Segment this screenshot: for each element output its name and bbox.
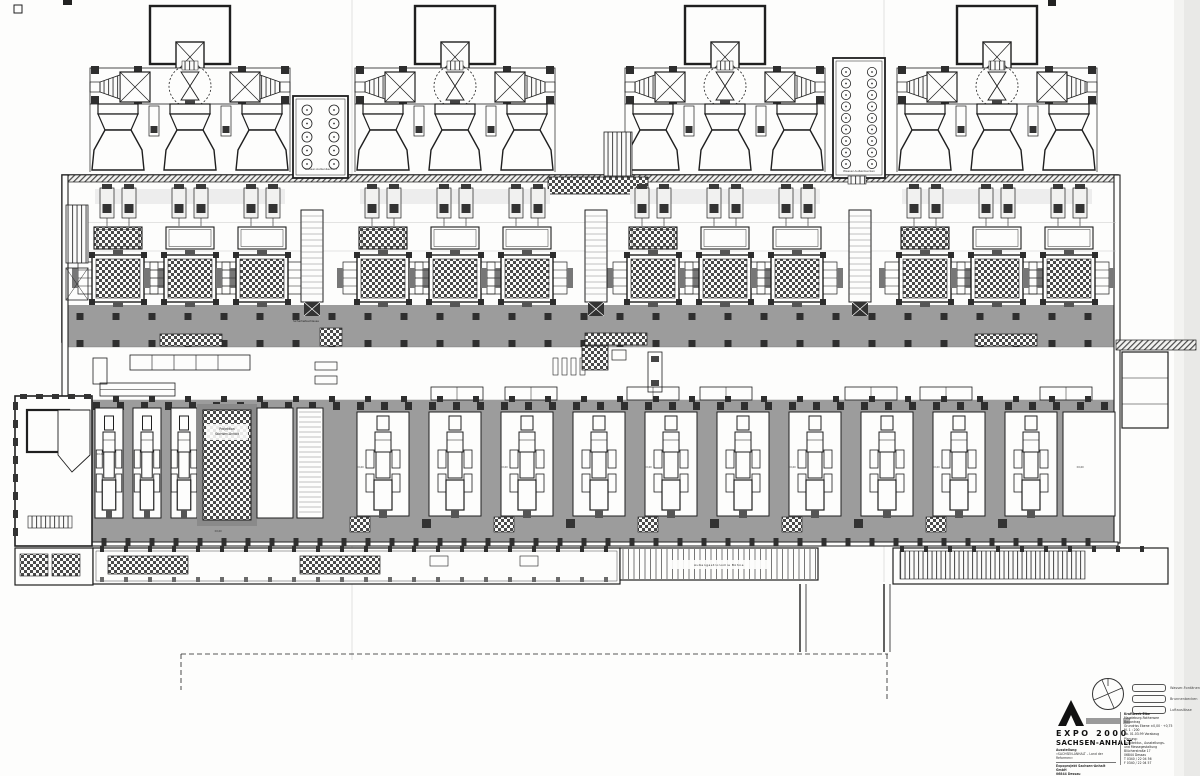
turbine-base <box>374 480 392 510</box>
plan-shape <box>624 299 630 305</box>
hopper-body <box>1043 130 1095 170</box>
plan-shape <box>781 184 791 189</box>
plan-shape <box>337 268 343 288</box>
plan-shape <box>1053 184 1063 189</box>
turbine-body <box>376 452 390 478</box>
column-post <box>1029 402 1036 410</box>
column-post <box>630 538 635 546</box>
plan-shape <box>113 302 123 307</box>
column-post <box>689 340 696 347</box>
ladder-shaft <box>297 408 323 518</box>
divider <box>1056 762 1116 763</box>
arcade-post <box>996 546 1000 552</box>
column-post <box>13 438 18 446</box>
column-post <box>333 402 340 410</box>
plan-shape <box>246 184 256 189</box>
column-post <box>293 340 300 347</box>
plan-shape <box>845 106 847 108</box>
pump-unit <box>1073 188 1087 218</box>
arcade-post <box>268 577 272 582</box>
plan-shape <box>333 163 335 165</box>
column-post <box>1085 313 1092 320</box>
platform-column <box>281 66 289 74</box>
plan-shape <box>175 204 184 213</box>
plan-shape <box>717 61 733 70</box>
column-post <box>846 538 851 546</box>
plan-shape <box>792 250 802 255</box>
column-post <box>725 396 731 402</box>
pump-unit <box>1001 188 1015 218</box>
scan-edge-light <box>1174 0 1184 776</box>
turbine-base <box>1022 480 1040 510</box>
plan-shape <box>450 302 460 307</box>
plan-shape <box>751 268 757 288</box>
column-post <box>941 340 948 347</box>
arcade-post <box>124 577 128 582</box>
column-post <box>741 402 748 410</box>
arcade-post <box>364 577 368 582</box>
plan-shape <box>478 299 484 305</box>
level-marker: ±0,00 <box>644 466 652 469</box>
column-post <box>414 538 419 546</box>
plan-shape <box>174 184 184 189</box>
hopper-body <box>357 130 409 170</box>
plan-shape <box>731 184 741 189</box>
plan-shape <box>213 252 219 258</box>
title-block-left-column: Ausstellung «SACHSEN-ANHALT – Land der R… <box>1056 748 1116 776</box>
turbine-top <box>105 416 114 430</box>
column-post <box>1101 402 1108 410</box>
scan-mark <box>63 0 72 5</box>
plan-shape <box>285 299 291 305</box>
plan-shape <box>20 554 48 576</box>
column-post <box>750 538 755 546</box>
column-post <box>581 396 587 402</box>
plan-shape <box>511 184 521 189</box>
plan-shape <box>1004 204 1013 213</box>
plan-shape <box>505 259 549 298</box>
floor-patch <box>320 328 342 346</box>
plan-shape <box>306 109 308 111</box>
plan-shape <box>233 252 239 258</box>
water-basin <box>833 58 885 178</box>
plan-shape <box>648 250 658 255</box>
scan-mark <box>14 5 22 13</box>
plan-shape <box>223 126 230 133</box>
pump-unit <box>194 188 208 218</box>
plan-shape <box>696 252 702 258</box>
plan-shape <box>478 252 484 258</box>
column-post <box>473 313 480 320</box>
column-post <box>13 492 18 500</box>
column-post <box>653 313 660 320</box>
floor-patch <box>494 517 514 532</box>
column-post <box>582 538 587 546</box>
arcade-post <box>100 577 104 582</box>
arcade-post <box>316 546 320 552</box>
plan-shape <box>820 252 826 258</box>
column-post <box>293 396 299 402</box>
column-post <box>13 510 18 518</box>
column-post <box>774 538 779 546</box>
plan-shape <box>1092 299 1098 305</box>
column-post <box>597 402 604 410</box>
arcade-post <box>220 546 224 552</box>
column-post <box>981 402 988 410</box>
column-post <box>149 396 155 402</box>
turbine-coupling <box>447 432 463 452</box>
turbine-top <box>143 416 152 430</box>
arcade-post <box>508 577 512 582</box>
plan-shape <box>845 140 847 142</box>
column-post <box>525 402 532 410</box>
plan-shape <box>367 184 377 189</box>
column-post <box>1049 313 1056 320</box>
column-post <box>966 538 971 546</box>
column-post <box>545 396 551 402</box>
plan-shape <box>837 268 843 288</box>
column-post <box>270 538 275 546</box>
column-post <box>617 396 623 402</box>
column-post <box>13 474 18 482</box>
column-post <box>1086 538 1091 546</box>
turbine-top <box>593 416 605 430</box>
turbine-foot <box>1027 510 1035 518</box>
column-post <box>833 313 840 320</box>
plan-shape <box>871 106 873 108</box>
plan-shape <box>676 299 682 305</box>
column-post <box>941 396 947 402</box>
column-post <box>357 402 364 410</box>
plan-shape <box>871 152 873 154</box>
column-post <box>869 396 875 402</box>
plan-shape <box>416 126 423 133</box>
arcade-post <box>556 577 560 582</box>
turbine-top <box>449 416 461 430</box>
hopper-body <box>699 130 751 170</box>
arcade-post <box>220 577 224 582</box>
turbine-foot <box>811 510 819 518</box>
plan-shape <box>958 126 965 133</box>
column-post <box>789 402 796 410</box>
plan-shape <box>216 268 222 288</box>
turbine-foot <box>739 510 747 518</box>
project-info-line: F 0340 / 22 04 57 <box>1124 761 1200 765</box>
turbine-foot <box>379 510 387 518</box>
scan-mark <box>1048 0 1056 6</box>
exhibition-subtitle: «SACHSEN-ANHALT – Land der Reformen» <box>1056 752 1116 760</box>
column-post <box>185 313 192 320</box>
turbine-body <box>952 452 966 478</box>
plan-shape <box>951 268 957 288</box>
arcade-post <box>1020 546 1024 552</box>
column-post <box>621 402 628 410</box>
turbine-coupling <box>807 432 823 452</box>
column-post <box>870 538 875 546</box>
plan-shape <box>948 252 954 258</box>
column-post <box>246 538 251 546</box>
plan-shape <box>182 61 198 70</box>
column-post <box>150 538 155 546</box>
column-post <box>429 402 436 410</box>
plan-shape <box>333 136 335 138</box>
plan-shape <box>406 299 412 305</box>
hopper-top <box>507 104 547 114</box>
column-post <box>509 396 515 402</box>
hopper-body <box>971 130 1023 170</box>
process-table <box>973 227 1021 249</box>
arcade-post <box>532 577 536 582</box>
arcade-post <box>388 546 392 552</box>
column-post <box>366 538 371 546</box>
process-table <box>773 227 821 249</box>
plan-shape <box>426 299 432 305</box>
plan-shape <box>240 259 284 298</box>
water-basin-label: Wasser-Außenbecken <box>843 169 875 173</box>
column-post <box>885 402 892 410</box>
plan-shape <box>703 259 747 298</box>
arcade-post <box>436 577 440 582</box>
column-post <box>761 340 768 347</box>
column-post <box>501 402 508 410</box>
plan-shape <box>333 109 335 111</box>
hopper-neck <box>633 114 673 130</box>
water-basin-label: Wasser-Außenbecken <box>304 167 336 171</box>
pump-unit <box>365 188 379 218</box>
plan-shape <box>498 299 504 305</box>
column-post <box>545 313 552 320</box>
turbine-coupling <box>141 432 153 452</box>
plan-shape <box>1064 302 1074 307</box>
plan-shape <box>144 268 150 288</box>
arcade-post <box>1068 546 1072 552</box>
arcade-post <box>148 546 152 552</box>
plan-shape <box>185 250 195 255</box>
pump-unit <box>387 188 401 218</box>
plan-shape <box>1030 126 1037 133</box>
pump-unit <box>266 188 280 218</box>
turbine-body <box>880 452 894 478</box>
turbine-base <box>446 480 464 510</box>
plan-shape <box>845 94 847 96</box>
plan-shape <box>651 380 659 386</box>
plan-shape <box>720 302 730 307</box>
floor-patch <box>350 517 370 532</box>
hopper-top <box>705 104 745 114</box>
turbine-body <box>104 452 115 478</box>
turbine-body <box>736 452 750 478</box>
turbine-top <box>737 416 749 430</box>
plan-shape <box>333 123 335 125</box>
plan-shape <box>696 299 702 305</box>
arcade-post <box>196 577 200 582</box>
turbine-coupling <box>879 432 895 452</box>
column-post <box>653 396 659 402</box>
column-post <box>401 396 407 402</box>
column-post <box>761 396 767 402</box>
plan-shape <box>125 204 134 213</box>
arcade-post <box>508 546 512 552</box>
column-post <box>365 396 371 402</box>
arcade-post <box>1044 546 1048 552</box>
plan-shape <box>637 184 647 189</box>
column-post <box>329 396 335 402</box>
service-box <box>710 519 719 528</box>
arcade-post <box>580 577 584 582</box>
plan-shape <box>550 252 556 258</box>
plan-shape <box>389 184 399 189</box>
column-post <box>257 340 264 347</box>
plan-shape <box>1023 268 1029 288</box>
bench-platform <box>585 333 647 345</box>
hopper-neck <box>242 114 282 130</box>
hopper-neck <box>363 114 403 130</box>
turbine-foot <box>144 510 150 518</box>
column-post <box>13 456 18 464</box>
arcade-post <box>268 546 272 552</box>
platform-column <box>546 96 554 104</box>
plan-shape <box>368 204 377 213</box>
arcade-post <box>604 546 608 552</box>
pump-unit <box>907 188 921 218</box>
column-post <box>77 313 84 320</box>
turbine-body <box>664 452 678 478</box>
arcade-post <box>340 546 344 552</box>
plan-shape <box>659 184 669 189</box>
turbine-foot <box>883 510 891 518</box>
pump-unit <box>100 188 114 218</box>
column-post <box>198 538 203 546</box>
plan-shape <box>1109 268 1115 288</box>
column-post <box>318 538 323 546</box>
legend-label: Wasser-Fontänen <box>1170 686 1200 690</box>
column-post <box>833 340 840 347</box>
platform-column <box>1088 66 1096 74</box>
turbine-body <box>179 452 190 478</box>
plan-shape <box>533 184 543 189</box>
water-basin <box>293 96 348 178</box>
plan-shape <box>748 299 754 305</box>
plan-shape <box>103 204 112 213</box>
column-post <box>437 396 443 402</box>
plan-shape <box>1092 252 1098 258</box>
column-post <box>1049 396 1055 402</box>
column-post <box>977 313 984 320</box>
column-post <box>869 340 876 347</box>
hopper-top <box>777 104 817 114</box>
arcade-post <box>148 577 152 582</box>
hopper-body <box>164 130 216 170</box>
plan-shape <box>968 252 974 258</box>
hopper-neck <box>1049 114 1089 130</box>
plan-shape <box>285 252 291 258</box>
plan-shape <box>1040 252 1046 258</box>
exhibit-bay <box>1063 412 1115 516</box>
hopper-top <box>242 104 282 114</box>
column-post <box>1005 402 1012 410</box>
turbine-base <box>662 480 680 510</box>
plan-shape <box>361 259 405 298</box>
platform-column <box>626 96 634 104</box>
turbine-foot <box>106 510 112 518</box>
plan-shape <box>631 259 675 298</box>
hopper-top <box>170 104 210 114</box>
column-post <box>222 538 227 546</box>
plan-shape <box>624 252 630 258</box>
plan-shape <box>233 299 239 305</box>
turbine-coupling <box>178 432 190 452</box>
turbine-coupling <box>663 432 679 452</box>
level-marker: ±0,00 <box>96 453 104 456</box>
process-table <box>94 227 142 249</box>
stage-label: Außengastronomie Bühne <box>694 563 744 567</box>
turbine-top <box>809 416 821 430</box>
turbine-foot <box>451 510 459 518</box>
process-table <box>431 227 479 249</box>
hopper-body <box>429 130 481 170</box>
pump-unit <box>172 188 186 218</box>
plan-shape <box>903 259 947 298</box>
plan-shape <box>213 299 219 305</box>
plan-shape <box>845 163 847 165</box>
hopper-top <box>98 104 138 114</box>
plan-shape <box>782 204 791 213</box>
plan-shape <box>52 554 80 576</box>
column-post <box>702 538 707 546</box>
plan-shape <box>440 204 449 213</box>
column-post <box>438 538 443 546</box>
stair-shaft <box>301 210 323 302</box>
process-table <box>359 227 407 249</box>
plan-shape <box>450 250 460 255</box>
plan-shape <box>758 126 765 133</box>
column-post <box>1038 538 1043 546</box>
plan-shape <box>651 356 659 362</box>
column-post <box>606 538 611 546</box>
column-post <box>717 402 724 410</box>
column-post <box>581 313 588 320</box>
platform-column <box>91 66 99 74</box>
pump-unit <box>729 188 743 218</box>
plan-shape <box>89 252 95 258</box>
column-post <box>365 340 372 347</box>
floor-patch <box>782 517 802 532</box>
column-post <box>84 394 91 399</box>
arcade-post <box>364 546 368 552</box>
arcade-platform <box>300 556 380 574</box>
column-post <box>509 313 516 320</box>
plan-shape <box>306 123 308 125</box>
plan-shape <box>638 204 647 213</box>
plan-shape <box>931 184 941 189</box>
plan-shape <box>989 61 1005 70</box>
column-post <box>693 402 700 410</box>
arcade-post <box>436 546 440 552</box>
arcade-post <box>556 546 560 552</box>
column-post <box>909 402 916 410</box>
address-line: 06844 Dessau <box>1056 772 1116 776</box>
plan-shape <box>768 252 774 258</box>
column-post <box>342 538 347 546</box>
column-post <box>477 402 484 410</box>
plan-shape <box>871 117 873 119</box>
plan-shape <box>462 204 471 213</box>
column-post <box>1077 402 1084 410</box>
column-post <box>549 402 556 410</box>
arcade-post <box>580 546 584 552</box>
pump-unit <box>929 188 943 218</box>
plan-shape <box>720 250 730 255</box>
